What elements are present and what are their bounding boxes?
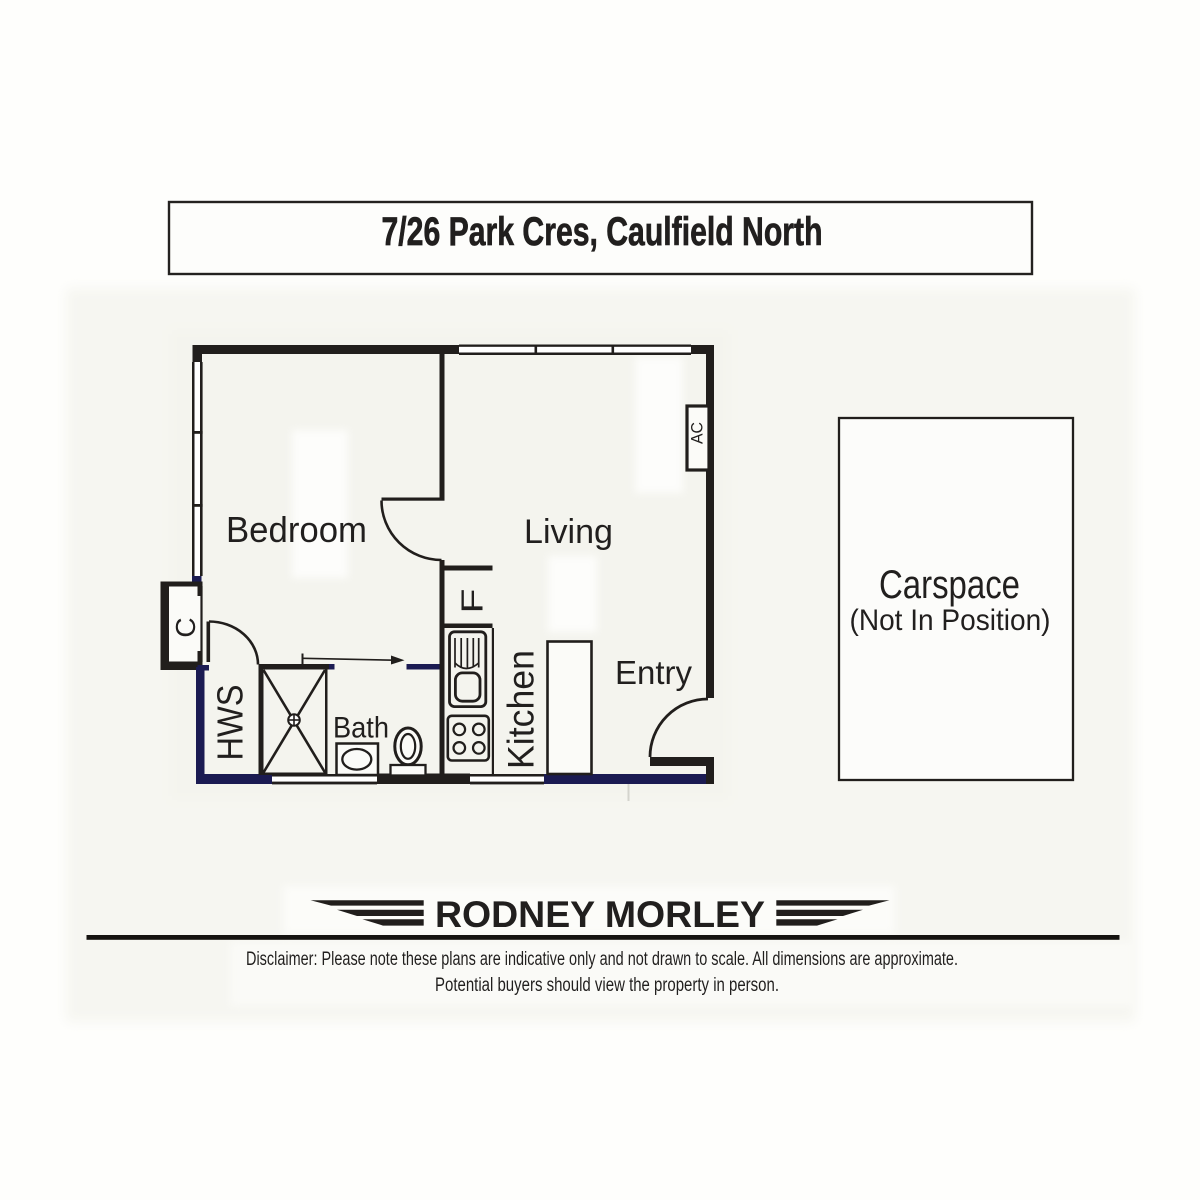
svg-text:(Not In Position): (Not In Position) — [850, 604, 1051, 637]
svg-text:Entry: Entry — [615, 654, 693, 691]
svg-text:7/26 Park Cres, Caulfield Nort: 7/26 Park Cres, Caulfield North — [382, 210, 823, 254]
svg-text:C: C — [170, 617, 201, 637]
svg-text:AC: AC — [688, 422, 707, 444]
svg-text:HWS: HWS — [210, 685, 251, 761]
svg-text:RODNEY MORLEY: RODNEY MORLEY — [435, 894, 765, 935]
svg-text:Bedroom: Bedroom — [226, 509, 367, 550]
svg-text:Carspace: Carspace — [879, 563, 1020, 607]
svg-text:Living: Living — [524, 513, 613, 551]
svg-text:Disclaimer: Please note these: Disclaimer: Please note these plans are … — [246, 949, 958, 970]
svg-text:Potential buyers should view t: Potential buyers should view the propert… — [435, 975, 779, 996]
svg-text:Bath: Bath — [333, 712, 389, 745]
svg-text:Kitchen: Kitchen — [501, 650, 542, 769]
svg-text:F: F — [455, 589, 490, 614]
